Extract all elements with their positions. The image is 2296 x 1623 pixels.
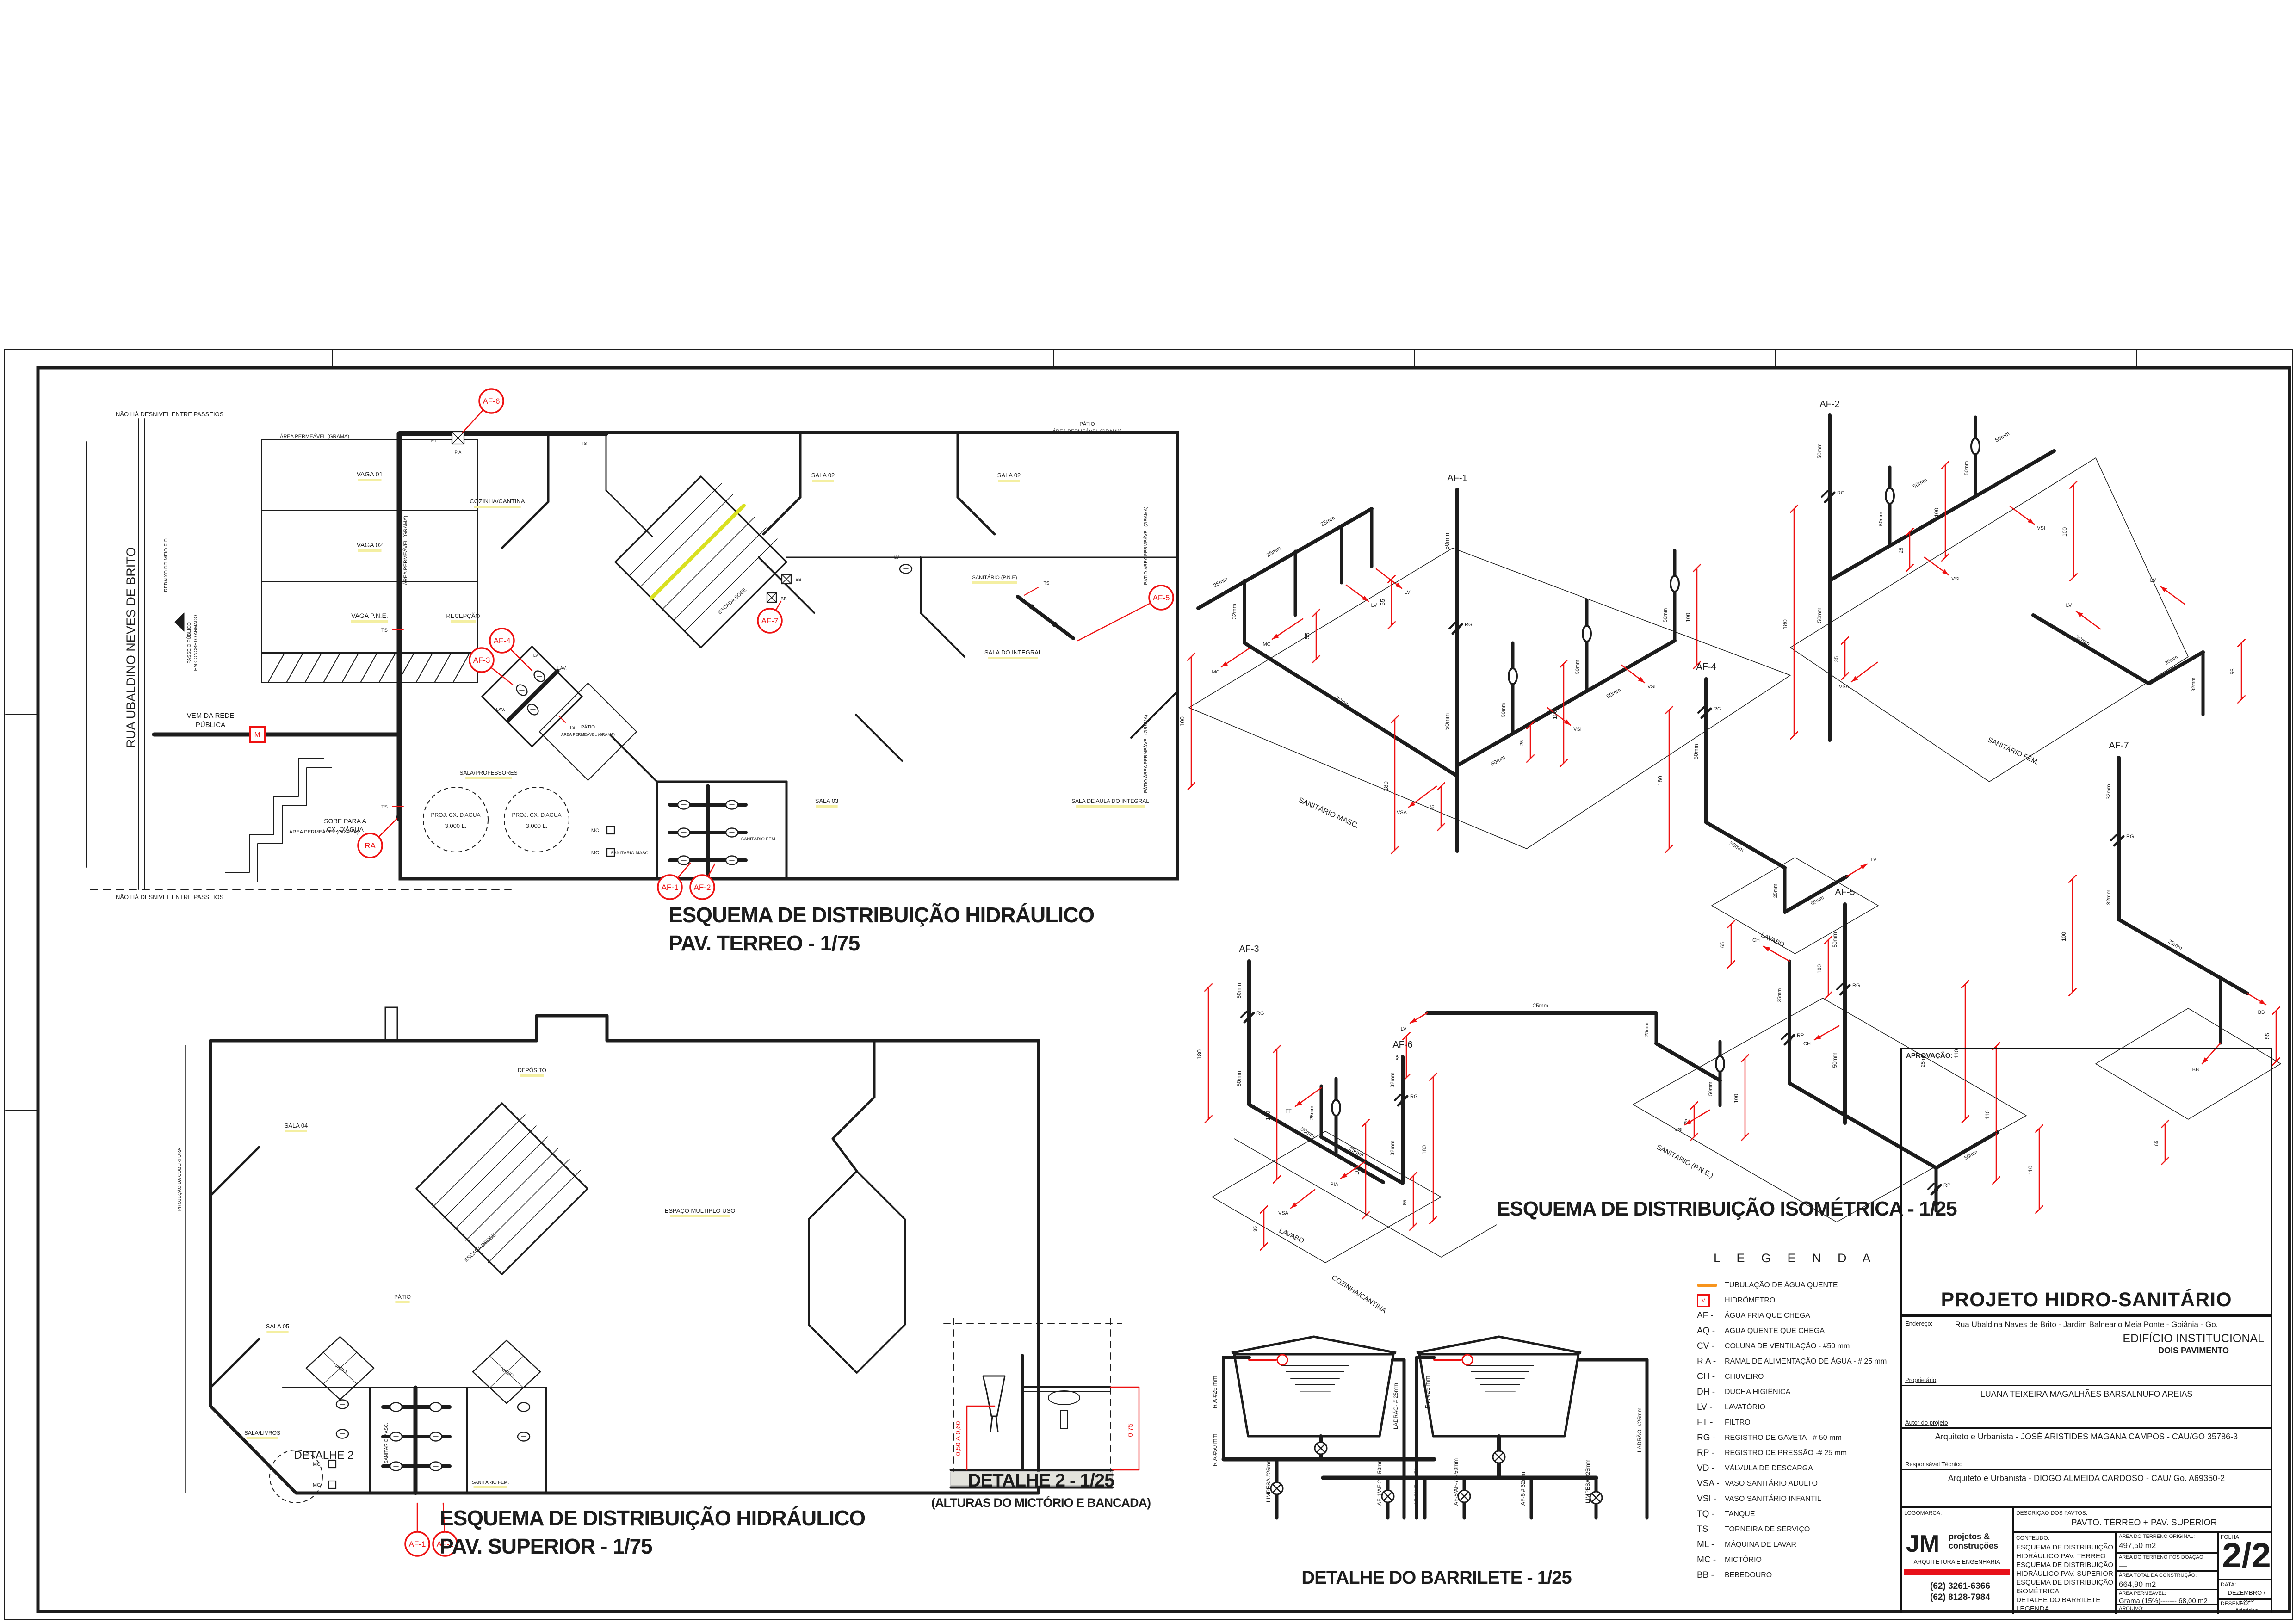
label-highlight xyxy=(520,1074,544,1077)
dim-value: 180 xyxy=(1421,1145,1428,1154)
legend-text: LAVATÓRIO xyxy=(1725,1403,1765,1412)
divider xyxy=(1902,1427,2271,1429)
label-highlight xyxy=(1076,805,1145,808)
valve-rg xyxy=(1241,1012,1247,1017)
legend-code: MC - xyxy=(1690,1555,1725,1565)
hydrometer-m: M xyxy=(254,731,260,739)
title-block: APROVAÇÃO: PROJETO HIDRO-SANITÁRIO Ender… xyxy=(1900,1048,2272,1613)
iso-room-label: COZINHA/CANTINA xyxy=(1330,1274,1388,1315)
legend-text: FILTRO xyxy=(1725,1419,1751,1427)
divider xyxy=(2117,1570,2217,1572)
content-line: ESQUEMA DE DISTRIBUIÇÃO xyxy=(2016,1543,2113,1552)
wall xyxy=(502,502,548,548)
divider xyxy=(2117,1604,2217,1605)
valve-rp xyxy=(1788,1038,1792,1042)
marker-leader xyxy=(510,649,532,671)
legend-code: FT - xyxy=(1690,1418,1725,1428)
phone: (62) 3261-6366 xyxy=(1930,1581,1990,1592)
pipe-size: 50mm xyxy=(1490,754,1506,767)
legend-text: ÁGUA FRIA QUE CHEGA xyxy=(1725,1312,1810,1320)
af-marker-label: AF-6 xyxy=(483,397,500,406)
iso-room-label: SANITÁRIO FEM. xyxy=(1987,736,2041,766)
arrow-head xyxy=(2160,586,2167,592)
legend-title: L E G E N D A xyxy=(1714,1251,1912,1265)
legend-text: BEBEDOURO xyxy=(1725,1571,1772,1580)
legend-text: REGISTRO DE GAVETA - # 50 mm xyxy=(1725,1434,1842,1442)
legend-item: MC -MICTÓRIO xyxy=(1690,1552,1912,1567)
stair-highlight xyxy=(651,506,744,598)
legend-code: TQ - xyxy=(1690,1509,1725,1519)
legend-item: TUBULAÇÃO DE ÁGUA QUENTE xyxy=(1690,1277,1912,1293)
building-type: EDIFÍCIO INSTITUCIONAL xyxy=(2123,1332,2264,1345)
approval-label: APROVAÇÃO: xyxy=(1906,1052,1953,1060)
floors-desc-value: PAVTO. TÉRREO + PAV. SUPERIOR xyxy=(2016,1518,2272,1528)
divider xyxy=(2117,1589,2217,1590)
title-barrilete: DETALHE DO BARRILETE - 1/25 xyxy=(1286,1566,1587,1590)
label-highlight xyxy=(474,1486,507,1488)
fixture-label: MC xyxy=(313,1462,321,1467)
sheet-number: 2/2 xyxy=(2221,1536,2272,1576)
annotation: PROJ. CX. D'AGUA xyxy=(431,812,481,818)
room-label: SALA 05 xyxy=(266,1323,290,1330)
legend-text: VASO SANITÁRIO ADULTO xyxy=(1725,1480,1818,1488)
stair-step xyxy=(444,1126,536,1218)
pipe-size: 50mm xyxy=(1994,430,2011,444)
room-label: RECEPÇÃO xyxy=(446,612,480,619)
annotation: NÃO HÁ DESNIVEL ENTRE PASSEIOS xyxy=(116,411,224,418)
fixture-label: LAV. xyxy=(557,666,567,671)
room-label: SANITÁRIO MASC. xyxy=(383,1423,389,1463)
annotation: SOBE PARA A xyxy=(324,817,366,825)
pipe-size: 50mm xyxy=(1693,744,1699,759)
pipe-size: 25mm xyxy=(1319,514,1336,528)
arrow-head xyxy=(1814,1035,1821,1040)
pipe-size: 50mm xyxy=(1708,1082,1714,1096)
legend-text: TUBULAÇÃO DE ÁGUA QUENTE xyxy=(1725,1281,1838,1290)
title-line: ESQUEMA DE DISTRIBUIÇÃO HIDRÁULICO xyxy=(668,901,1094,929)
flush-valve xyxy=(1671,576,1679,592)
room-label: SALA 02 xyxy=(997,472,1021,479)
hatch-line xyxy=(342,653,359,683)
fixture-label: LAV. xyxy=(496,707,505,712)
af-marker-label: AF-5 xyxy=(1153,593,1170,602)
valve-rg xyxy=(1401,1099,1405,1103)
jm-tagline: projetos & construções xyxy=(1949,1532,1998,1550)
divider xyxy=(2014,1531,2272,1533)
pipe-node xyxy=(396,815,402,821)
pipe-label: R A #25 mm xyxy=(1211,1376,1218,1409)
valve-label: RP xyxy=(1797,1033,1804,1038)
legend-item: VSA -VASO SANITÁRIO ADULTO xyxy=(1690,1476,1912,1491)
room-label: VAGA 02 xyxy=(357,541,383,549)
float-valve xyxy=(1462,1355,1473,1365)
urinal-symbol xyxy=(607,827,614,834)
wall xyxy=(763,497,800,534)
title-detalhe2-sub: (ALTURAS DO MICTÓRIO E BANCADA) xyxy=(897,1495,1184,1512)
plan2-perimeter xyxy=(210,1016,1039,1493)
water-box-proj xyxy=(423,787,488,852)
drawn-by-label: DESENHO: xyxy=(2221,1600,2250,1607)
legend-code: VD - xyxy=(1690,1463,1725,1474)
flush-valve xyxy=(1716,1056,1724,1072)
legend-text: MICTÓRIO xyxy=(1725,1556,1762,1564)
valve-rg xyxy=(1698,707,1704,713)
title-isometrica: ESQUEMA DE DISTRIBUIÇÃO ISOMÉTRICA - 1/2… xyxy=(1497,1196,1957,1222)
label-highlight xyxy=(812,480,834,482)
drawn-by-value: Aristides xyxy=(2221,1607,2272,1614)
ramp xyxy=(258,768,332,882)
valve-label: RG xyxy=(1852,983,1860,988)
arrow-head xyxy=(2028,518,2034,524)
arrow-head xyxy=(2076,611,2083,617)
iso-pipe xyxy=(2119,919,2247,994)
fixture-label: TS xyxy=(381,804,388,810)
divider xyxy=(2115,1531,2117,1614)
legend-item: VSI -VASO SANITÁRIO INFANTIL xyxy=(1690,1491,1912,1506)
annotation: PASSEIO PÚBLICO xyxy=(186,622,192,664)
dim-value: 55 xyxy=(1304,633,1311,639)
pipe-size: 50mm xyxy=(1816,607,1823,623)
iso-pipe xyxy=(1656,1043,1720,1080)
fixture-label: LV xyxy=(894,555,899,560)
room-label: SALA 03 xyxy=(815,797,839,804)
dim-value: 55 xyxy=(1395,1055,1401,1060)
wall xyxy=(833,1139,857,1171)
legend-text: TANQUE xyxy=(1725,1510,1755,1518)
area-label: ÁREA PERMEÁVEL (GRAMA) xyxy=(402,516,408,585)
dim-value: 0,50 A 0,60 xyxy=(954,1421,962,1456)
arrow-head xyxy=(1272,634,1279,639)
pipe-size: 50mm xyxy=(1663,608,1668,623)
phone: (62) 8128-7984 xyxy=(1930,1592,1990,1603)
fixture-label: CH xyxy=(1803,1041,1811,1047)
valve-rg xyxy=(2111,835,2117,840)
af-marker-label: AF-1 xyxy=(662,883,679,892)
pipe-size: 32mm xyxy=(2191,678,2197,692)
room-label: ESPAÇO MULTIPLO USO xyxy=(665,1207,736,1214)
stair-step xyxy=(433,1115,525,1207)
label-highlight xyxy=(351,620,388,623)
room-label: PÁTIO xyxy=(394,1293,411,1300)
legend-item: CV -COLUNA DE VENTILAÇÃO - #50 mm xyxy=(1690,1339,1912,1354)
valve-label: RG xyxy=(1410,1094,1418,1099)
room-label: COZINHA/CANTINA xyxy=(470,498,525,505)
dim-value: 35 xyxy=(1430,805,1436,810)
pipe-label: LADRÃO- #25mm xyxy=(1636,1407,1643,1452)
hatch-line xyxy=(305,653,322,683)
content-line: DETALHE DO BARRILETE xyxy=(2016,1596,2113,1604)
pipe-size: 50mm xyxy=(1236,1071,1242,1086)
valve-rg xyxy=(1395,1095,1400,1100)
area3-label: ÁREA TOTAL DA CONSTRUÇÃO: xyxy=(2119,1573,2197,1578)
legend-item: LV -LAVATÓRIO xyxy=(1690,1400,1912,1415)
jm-line: construções xyxy=(1949,1541,1998,1550)
room-label: SANITÁRIO FEM. xyxy=(741,837,777,842)
annotation: 3.000 L. xyxy=(445,822,467,829)
tank-roof xyxy=(1232,1337,1396,1353)
pipe-size: 25mm xyxy=(1777,988,1782,1003)
dim-value: 55 xyxy=(1379,599,1386,605)
fixture-label: VSI xyxy=(1647,684,1656,690)
fixture-label: FT xyxy=(431,438,437,444)
legend-text: VASO SANITÁRIO INFANTIL xyxy=(1725,1495,1821,1503)
label-highlight xyxy=(451,620,476,623)
divider xyxy=(2117,1552,2217,1554)
jm-subtitle: ARQUITETURA E ENGENHARIA xyxy=(1904,1559,2010,1565)
hatch-line xyxy=(286,653,303,683)
wall xyxy=(611,735,657,782)
stair-label: ESCADA SOBE xyxy=(717,587,748,615)
room-label: SALA DO INTEGRAL xyxy=(984,649,1042,656)
area-label: ÁREA PERMEÁVEL (GRAMA) xyxy=(280,433,349,439)
marker-leader xyxy=(463,410,483,432)
valve-rg xyxy=(1843,988,1847,992)
iso-riser-label: AF-5 xyxy=(1835,887,1855,897)
label-highlight xyxy=(988,657,1038,659)
arrow-head xyxy=(1764,946,1770,951)
north-arrow xyxy=(175,613,184,631)
pipe-size: 50mm xyxy=(1832,932,1838,947)
dim-value: 180 xyxy=(1657,776,1664,786)
area2-label: AREA DO TERRENO POS DOAÇAO xyxy=(2119,1555,2203,1560)
area-label: ÁREA PERMEÁVEL (GRAMA) xyxy=(1052,428,1122,434)
divider xyxy=(2219,1579,2272,1580)
legend-text: ÁGUA QUENTE QUE CHEGA xyxy=(1725,1327,1825,1335)
title-line: ESQUEMA DE DISTRIBUIÇÃO HIDRÁULICO xyxy=(439,1504,865,1532)
hatch-line xyxy=(416,653,433,683)
fixture-label: MC xyxy=(591,850,599,856)
room-label: VAGA 01 xyxy=(357,470,383,478)
patio-court xyxy=(539,683,637,780)
flush-valve xyxy=(1509,668,1517,684)
iso-room-label: LAVABO xyxy=(1278,1227,1306,1245)
pipe-node xyxy=(1029,605,1034,609)
label-highlight xyxy=(465,777,512,779)
room-label: SALA 02 xyxy=(811,472,835,479)
dim-value: 35 xyxy=(1834,656,1839,662)
arrow-head xyxy=(1942,569,1949,575)
drawing-sheet: { "drawing_titles": { "terreo_line1": "E… xyxy=(0,0,2296,1623)
af-marker-label: AF-2 xyxy=(694,883,711,892)
hatch-strip xyxy=(261,653,478,683)
divider xyxy=(1902,1385,2271,1386)
fixture-label: LV xyxy=(1405,590,1411,595)
legend: L E G E N D A TUBULAÇÃO DE ÁGUA QUENTEMH… xyxy=(1690,1251,1912,1583)
label-highlight xyxy=(816,805,837,808)
water-box-proj xyxy=(504,787,569,852)
fixture-label: VSI xyxy=(2037,525,2045,531)
iso-plane xyxy=(1441,1225,1497,1257)
stair-step xyxy=(629,483,722,576)
dim-value: 120 xyxy=(1265,1111,1271,1120)
pipe-size: 50mm xyxy=(1443,713,1450,730)
label-highlight xyxy=(670,1215,730,1217)
valve-rg xyxy=(1822,491,1827,497)
pipe-size: 32mm xyxy=(2105,889,2112,905)
label-highlight xyxy=(358,549,382,552)
legend-code: AQ - xyxy=(1690,1326,1725,1336)
pipe-size: 32mm xyxy=(1231,604,1238,619)
hatch-line xyxy=(434,653,451,683)
dim-value: 100 xyxy=(1685,613,1691,622)
fixture-label: VSI xyxy=(1951,576,1960,582)
pipe-label: R A #25 mm xyxy=(1424,1376,1431,1409)
valve-rg xyxy=(1828,495,1832,500)
urinal-profile xyxy=(996,1416,998,1432)
wall xyxy=(833,1097,874,1139)
pipe-size: 25mm xyxy=(1212,575,1229,589)
content-label: CONTEUDO: xyxy=(2016,1535,2049,1541)
label-highlight xyxy=(972,581,1017,584)
dim-value: 100 xyxy=(2061,932,2067,941)
fixture-label: CH xyxy=(1752,938,1760,943)
stair-step xyxy=(455,1137,547,1229)
fixture-label: BB xyxy=(795,577,802,582)
dim-value: 0,75 xyxy=(1126,1423,1134,1437)
pipe-size: 50mm xyxy=(1912,476,1928,490)
fixture-label: MC xyxy=(591,828,599,833)
dim-value: 55 xyxy=(2229,668,2236,675)
content-list: ESQUEMA DE DISTRIBUIÇÃOHIDRÁULICO PAV. T… xyxy=(2016,1543,2113,1613)
legend-code: R A - xyxy=(1690,1357,1725,1367)
legend-item: RP -REGISTRO DE PRESSÃO -# 25 mm xyxy=(1690,1445,1912,1461)
arrow-head xyxy=(1860,864,1867,870)
fixture-label: LV xyxy=(2150,578,2156,583)
af-marker-label: AF-7 xyxy=(761,617,779,625)
pipe-node xyxy=(1052,622,1057,627)
fixture-label: VSA xyxy=(1839,684,1850,690)
iso-pipe xyxy=(2033,615,2149,684)
room-label: VAZIO xyxy=(500,1367,514,1378)
dim-value: 180 xyxy=(1382,781,1389,791)
fixture-label: VSA xyxy=(1278,1210,1289,1216)
phones: (62) 3261-6366 (62) 8128-7984 xyxy=(1930,1581,1990,1603)
pipe-size: 50mm xyxy=(1575,660,1580,674)
hatch-line xyxy=(323,653,340,683)
label-highlight xyxy=(285,1130,307,1132)
legend-code: VSI - xyxy=(1690,1494,1725,1504)
dim-value: 100 xyxy=(1733,1094,1739,1103)
room-label: SALA 04 xyxy=(285,1122,308,1129)
fixture-label: MC xyxy=(1262,642,1270,647)
wall xyxy=(1131,691,1177,738)
room-label: SANITÁRIO (P.N.E) xyxy=(972,574,1017,580)
content-line: HIDRÁULICO PAV. SUPERIOR xyxy=(2016,1569,2113,1578)
legend-code: AF - xyxy=(1690,1311,1725,1321)
pipe-label: AF-1/AF-2 # 50mm xyxy=(1376,1458,1383,1506)
annotation: 3.000 L. xyxy=(526,822,548,829)
valve-rg xyxy=(1704,711,1708,716)
flush-valve xyxy=(1583,626,1591,642)
legend-text: DUCHA HIGIÊNICA xyxy=(1725,1388,1790,1396)
legend-text: HIDRÔMETRO xyxy=(1725,1296,1775,1305)
legend-text: CHUVEIRO xyxy=(1725,1373,1764,1381)
float-valve xyxy=(1277,1355,1287,1365)
iso-plane xyxy=(1790,458,2188,782)
hatch-line xyxy=(268,653,285,683)
dim-value: 25 xyxy=(1683,1119,1689,1124)
wall xyxy=(606,490,652,537)
dim-value: 180 xyxy=(1782,619,1789,629)
room-label: DEPÓSITO xyxy=(518,1067,546,1074)
pipe-size: 32mm xyxy=(1389,1072,1396,1087)
iso-riser-label: AF-7 xyxy=(2109,741,2129,751)
iso-room-label: SANITÁRIO (P.N.E.) xyxy=(1655,1143,1714,1179)
hatch-line xyxy=(360,653,377,683)
dim-value: 100 xyxy=(1552,710,1558,719)
area3-value: 664,90 m2 xyxy=(2119,1580,2156,1589)
valve-rg xyxy=(1449,623,1455,629)
annotation: PÚBLICA xyxy=(196,721,225,729)
valve-label: RG xyxy=(1465,622,1473,628)
fixture-label: VSI xyxy=(1573,727,1582,732)
divider xyxy=(2217,1531,2219,1614)
room-label: SALA/PROFESSORES xyxy=(459,770,517,776)
wall xyxy=(210,1339,259,1388)
pipe-size: 25mm xyxy=(1309,1106,1315,1120)
wall xyxy=(759,557,814,613)
legend-code: CV - xyxy=(1690,1341,1725,1351)
marker-leader xyxy=(678,863,690,878)
divider xyxy=(2219,1598,2272,1600)
valve-label: RG xyxy=(1714,706,1721,712)
iso-riser-label: AF-2 xyxy=(1819,399,1839,409)
stair-step xyxy=(674,528,766,620)
dim-value: 25 xyxy=(1519,740,1525,746)
legend-text: RAMAL DE ALIMENTAÇÃO DE ÁGUA - # 25 mm xyxy=(1725,1358,1887,1366)
dim-value: 65 xyxy=(1402,1200,1408,1205)
legend-text: VÁLVULA DE DESCARGA xyxy=(1725,1464,1813,1473)
content-line: HIDRÁULICO PAV. TERREO xyxy=(2016,1552,2113,1561)
pipe xyxy=(1018,597,1073,638)
basin-trap xyxy=(1060,1411,1068,1428)
date-label: DATA: xyxy=(2221,1581,2236,1588)
pipe-label: AF-5/AF-7 # 50mm xyxy=(1453,1458,1459,1506)
tank-roof xyxy=(1417,1337,1581,1353)
courtyard xyxy=(809,1171,905,1373)
fixture-label: LV xyxy=(1401,1026,1407,1032)
owner-value: LUANA TEIXEIRA MAGALHÃES BARSALNUFO AREI… xyxy=(1902,1389,2271,1399)
label-highlight xyxy=(266,1331,288,1333)
hatch-line xyxy=(453,653,470,683)
area1-value: 497,50 m2 xyxy=(2119,1541,2156,1550)
arrow-head xyxy=(1295,1101,1302,1106)
room-label: SANITÁRIO MASC. xyxy=(611,851,650,856)
fixture-label: LV xyxy=(1871,857,1877,863)
author-label: Autor do projeto xyxy=(1905,1419,1948,1426)
legend-item: VD -VÁLVULA DE DESCARGA xyxy=(1690,1461,1912,1476)
area2-value: — xyxy=(2119,1561,2127,1571)
leader xyxy=(1024,587,1038,595)
legend-item: TQ -TANQUE xyxy=(1690,1506,1912,1522)
dim-value: 180 xyxy=(1196,1049,1203,1060)
title-line: PAV. TERREO - 1/75 xyxy=(668,929,1094,957)
area1-label: AREA DO TERRENO ORIGINAL: xyxy=(2119,1534,2195,1539)
fixture-label: TS xyxy=(1044,581,1050,586)
pipe-size: 25mm xyxy=(1773,884,1778,898)
dim-value: 55 xyxy=(2264,1033,2271,1039)
hot-water-line-swatch xyxy=(1697,1284,1717,1287)
pipe-size: 32mm xyxy=(1389,1140,1396,1155)
pipe-label: AF-6 # 32mm xyxy=(1520,1472,1526,1506)
iso-riser-label: AF-6 xyxy=(1392,1040,1412,1050)
street-name: RUA UBALDINO NEVES DE BRITO xyxy=(124,547,138,748)
area-label: PÁTIO xyxy=(1079,421,1095,427)
room-label: SALA/LIVROS xyxy=(244,1430,280,1436)
jm-line: projetos & xyxy=(1949,1532,1998,1541)
af-marker-label: RA xyxy=(365,841,376,850)
address-value: Rua Ubaldina Naves de Brito - Jardim Bal… xyxy=(1902,1320,2271,1329)
